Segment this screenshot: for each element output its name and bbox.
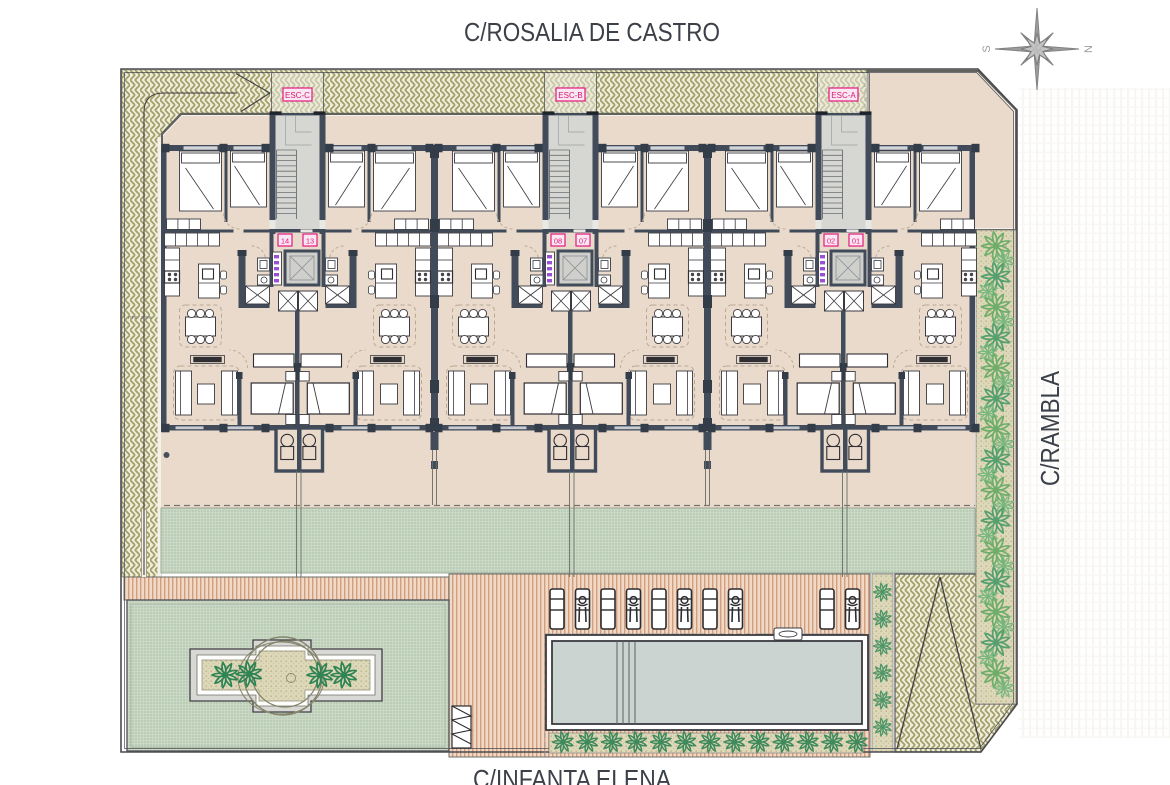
svg-text:14: 14 — [281, 237, 289, 246]
svg-text:13: 13 — [306, 237, 314, 246]
svg-text:C/ROSALIA DE CASTRO: C/ROSALIA DE CASTRO — [464, 17, 720, 47]
svg-text:PTE. 2.5%: PTE. 2.5% — [128, 315, 152, 320]
svg-text:07: 07 — [579, 237, 587, 246]
svg-text:S: S — [981, 45, 993, 52]
svg-text:01: 01 — [852, 237, 860, 246]
svg-text:ESC-A: ESC-A — [831, 91, 856, 100]
svg-text:N: N — [1083, 45, 1095, 53]
svg-text:C/RAMBLA: C/RAMBLA — [1035, 370, 1065, 486]
svg-text:C/INFANTA ELENA: C/INFANTA ELENA — [473, 764, 672, 785]
svg-text:08: 08 — [554, 237, 562, 246]
svg-text:ESC-C: ESC-C — [285, 91, 310, 100]
svg-text:ESC-B: ESC-B — [558, 91, 582, 100]
svg-text:02: 02 — [827, 237, 835, 246]
